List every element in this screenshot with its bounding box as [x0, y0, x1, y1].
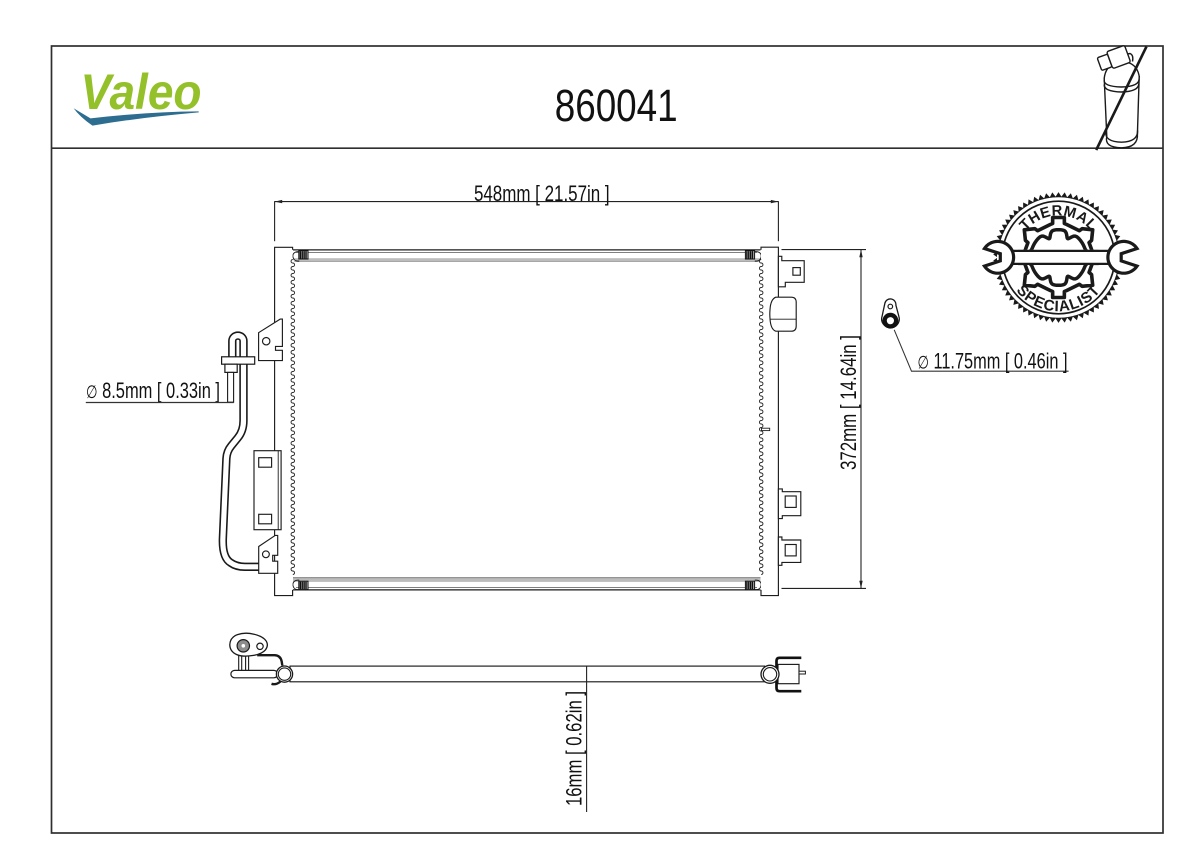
svg-text:372mm [ 14.64in ]: 372mm [ 14.64in ]	[836, 335, 861, 470]
svg-text:860041: 860041	[555, 80, 678, 131]
svg-text:Valeo: Valeo	[81, 64, 202, 120]
svg-text:548mm [ 21.57in ]: 548mm [ 21.57in ]	[474, 181, 610, 206]
svg-text:∅ 8.5mm [ 0.33in ]: ∅ 8.5mm [ 0.33in ]	[86, 378, 220, 403]
svg-text:∅ 11.75mm [ 0.46in ]: ∅ 11.75mm [ 0.46in ]	[918, 349, 1068, 374]
svg-text:16mm [ 0.62in ]: 16mm [ 0.62in ]	[561, 691, 586, 806]
